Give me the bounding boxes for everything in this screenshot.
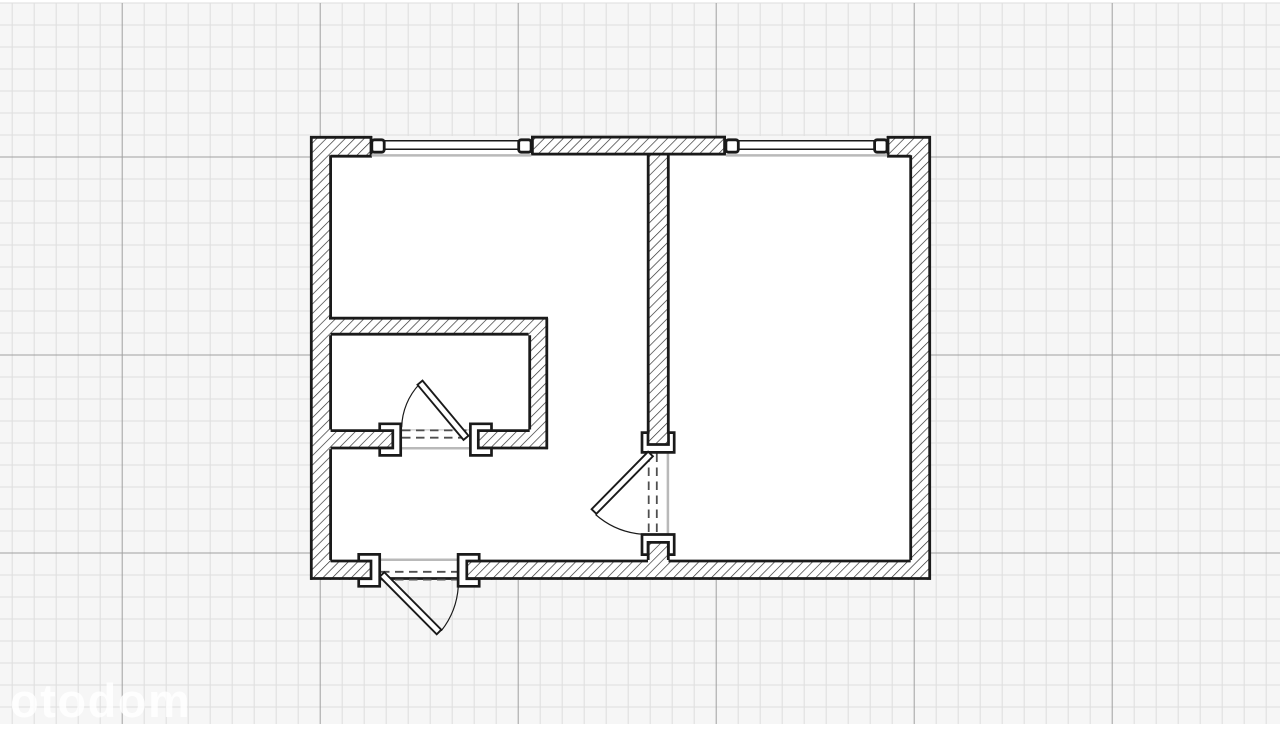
svg-text:otodom: otodom: [10, 674, 191, 724]
